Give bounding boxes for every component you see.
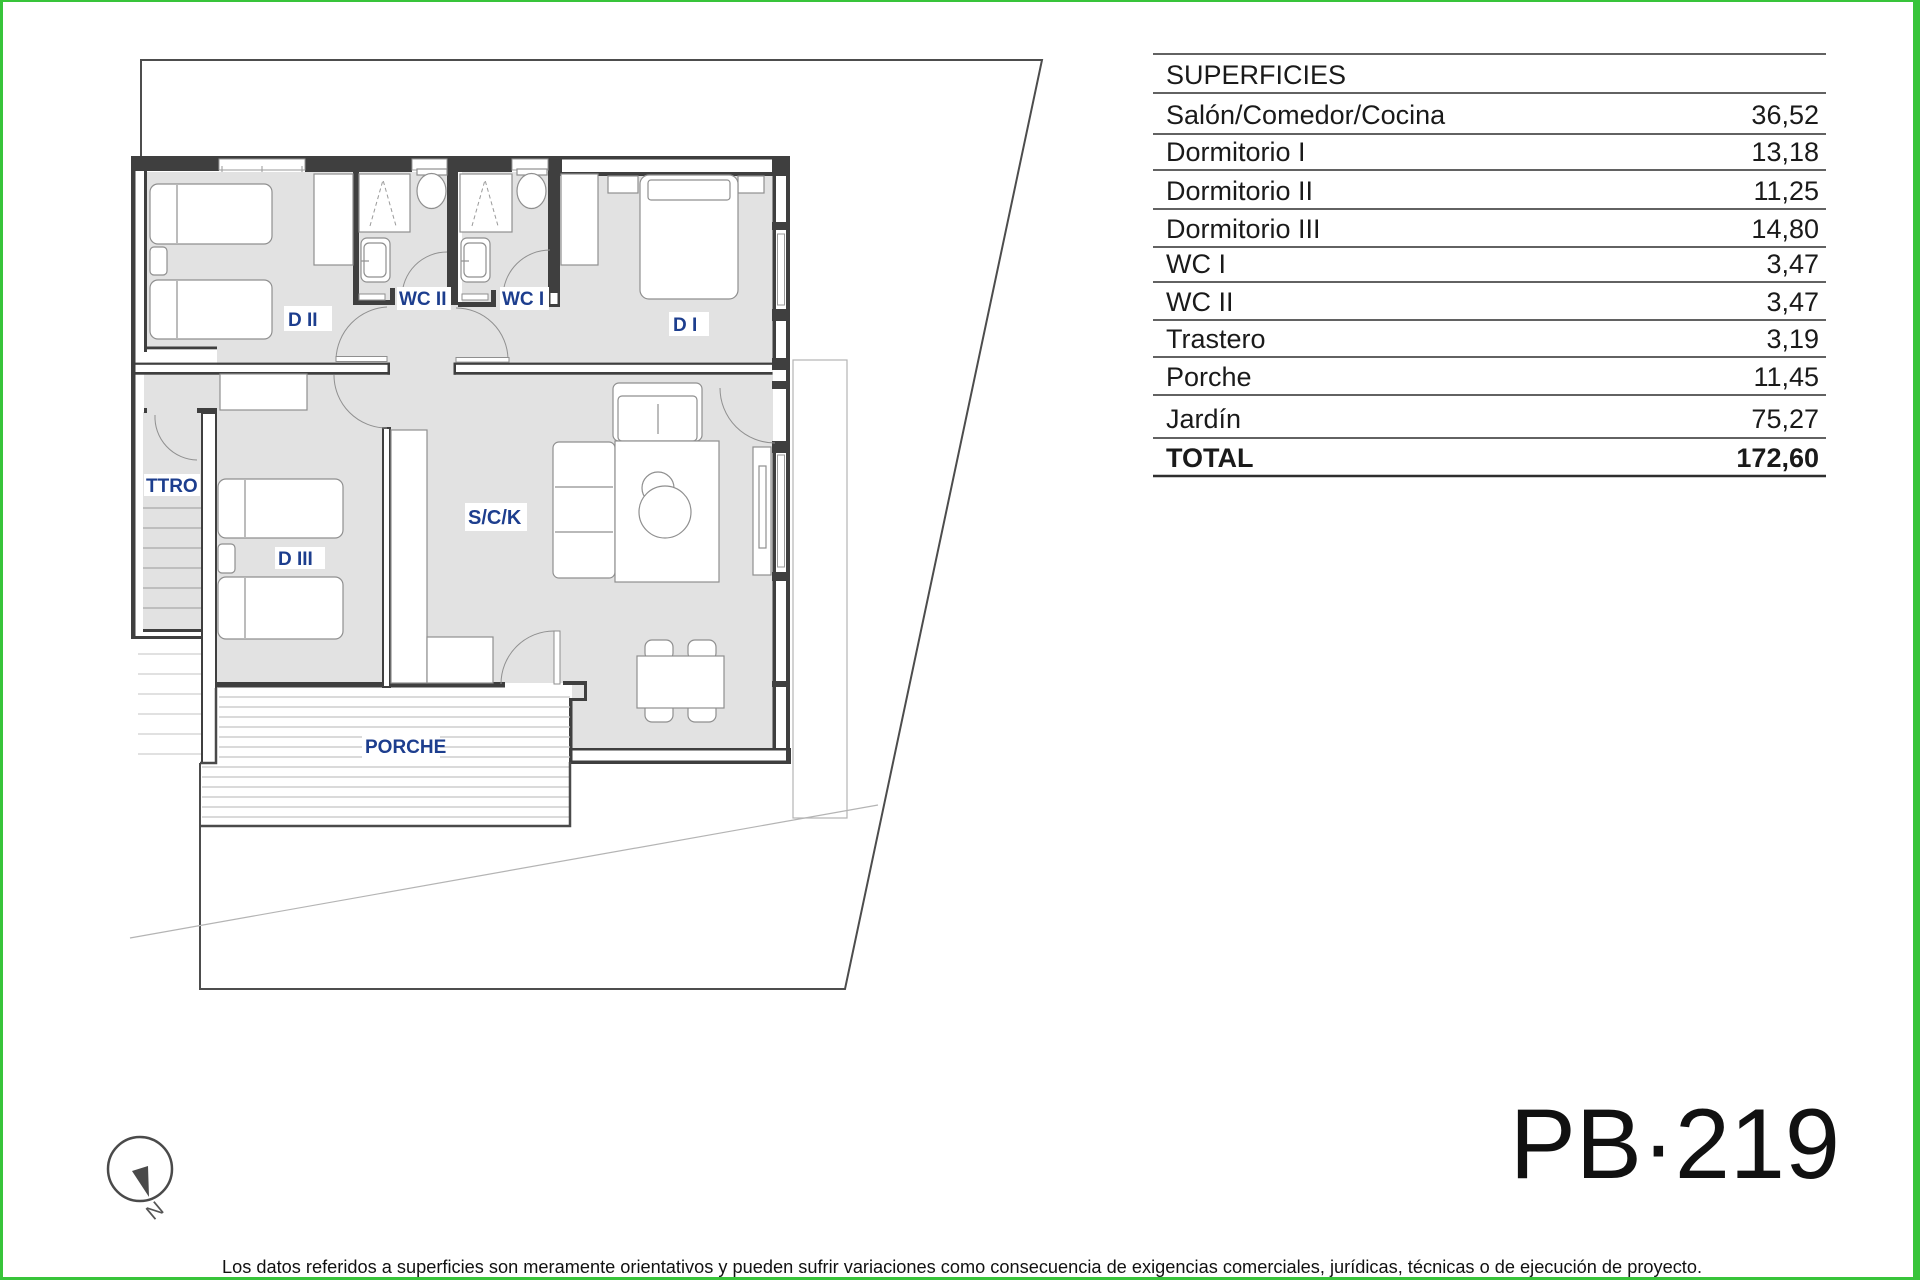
svg-text:172,60: 172,60 xyxy=(1736,443,1819,473)
svg-text:D II: D II xyxy=(288,310,318,331)
svg-text:3,19: 3,19 xyxy=(1766,324,1819,354)
svg-text:D I: D I xyxy=(673,315,697,336)
svg-text:Dormitorio II: Dormitorio II xyxy=(1166,176,1313,206)
svg-text:WC II: WC II xyxy=(399,289,447,310)
svg-text:36,52: 36,52 xyxy=(1751,100,1819,130)
svg-text:PORCHE: PORCHE xyxy=(365,737,446,758)
svg-text:Los datos referidos a superfic: Los datos referidos a superficies son me… xyxy=(222,1257,1702,1277)
svg-text:TOTAL: TOTAL xyxy=(1166,443,1254,473)
svg-text:Jardín: Jardín xyxy=(1166,404,1241,434)
svg-text:Trastero: Trastero xyxy=(1166,324,1266,354)
svg-text:SUPERFICIES: SUPERFICIES xyxy=(1166,60,1346,90)
svg-text:D III: D III xyxy=(278,549,313,570)
svg-text:PB·219: PB·219 xyxy=(1510,1088,1840,1199)
svg-text:Dormitorio I: Dormitorio I xyxy=(1166,137,1306,167)
svg-text:S/C/K: S/C/K xyxy=(468,507,522,529)
svg-text:Salón/Comedor/Cocina: Salón/Comedor/Cocina xyxy=(1166,100,1446,130)
svg-text:75,27: 75,27 xyxy=(1751,404,1819,434)
svg-text:Porche: Porche xyxy=(1166,362,1252,392)
svg-text:WC II: WC II xyxy=(1166,287,1234,317)
svg-text:13,18: 13,18 xyxy=(1751,137,1819,167)
svg-text:14,80: 14,80 xyxy=(1751,214,1819,244)
svg-text:3,47: 3,47 xyxy=(1766,287,1819,317)
svg-text:TTRO: TTRO xyxy=(146,476,198,497)
svg-text:WC I: WC I xyxy=(1166,249,1226,279)
svg-text:WC I: WC I xyxy=(502,289,544,310)
svg-text:3,47: 3,47 xyxy=(1766,249,1819,279)
svg-text:11,45: 11,45 xyxy=(1753,362,1819,392)
svg-text:Dormitorio III: Dormitorio III xyxy=(1166,214,1321,244)
svg-text:11,25: 11,25 xyxy=(1753,176,1819,206)
